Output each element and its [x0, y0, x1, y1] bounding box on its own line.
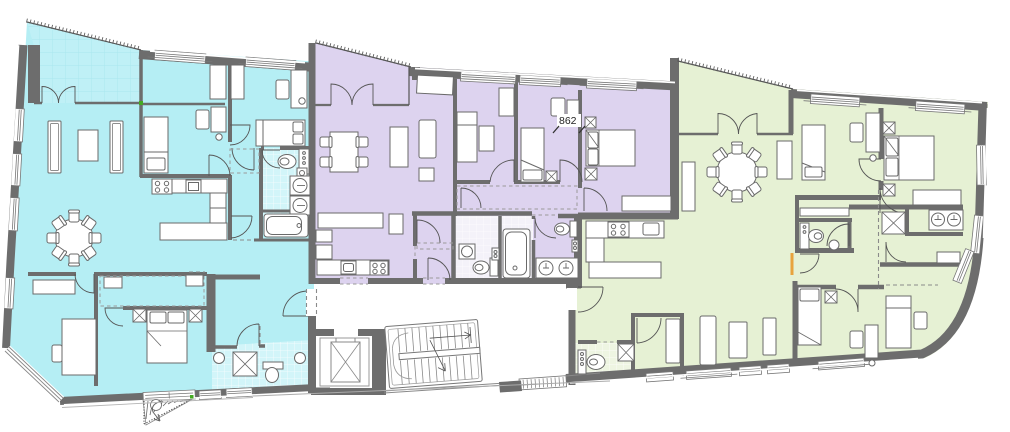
svg-text:862: 862	[559, 115, 577, 127]
